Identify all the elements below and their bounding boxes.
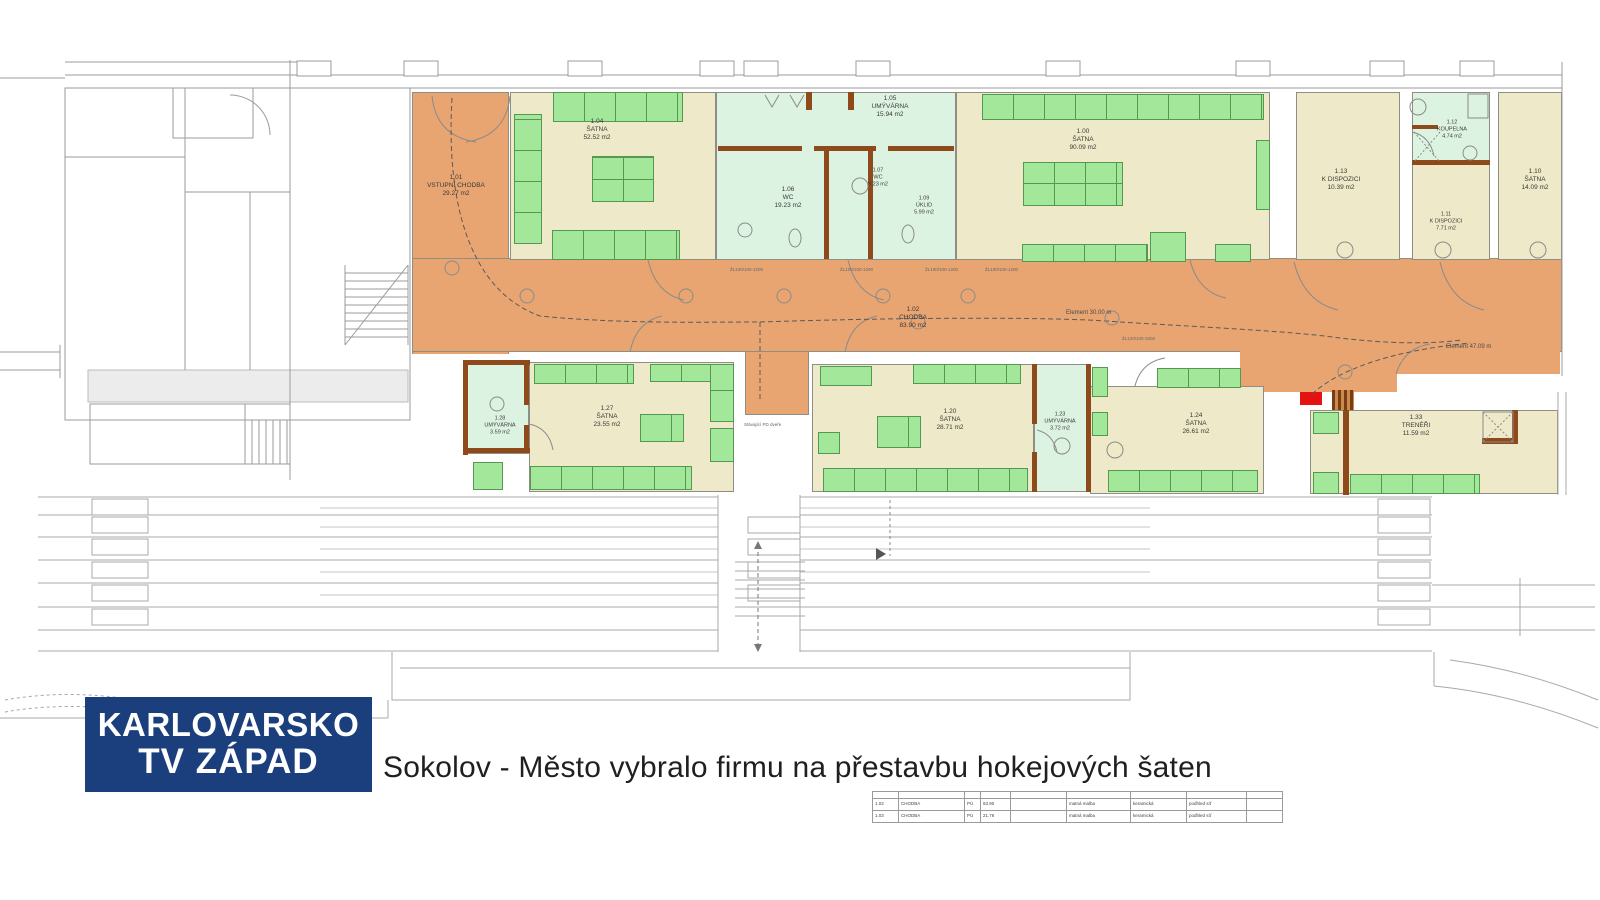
bench: [710, 364, 734, 422]
room-label-1-23: 1.23UMÝVÁRNA3.72 m2: [1044, 412, 1075, 433]
room-name: ŠATNA: [1521, 176, 1548, 184]
room-id: 1.20: [936, 408, 963, 416]
legend-cell: PÚ: [965, 811, 981, 823]
wall-segment: [1032, 452, 1037, 492]
legend-cell: [1247, 799, 1283, 811]
bench: [534, 364, 634, 384]
wall-segment: [1412, 125, 1438, 129]
wall-segment: [848, 92, 854, 110]
room-area: 29.27 m2: [427, 190, 485, 198]
room-label-1-11: 1.11K DISPOZICI7.71 m2: [1430, 212, 1463, 233]
room-id: 1.02: [899, 306, 927, 314]
wall-segment: [524, 425, 529, 453]
bench: [650, 364, 716, 382]
bench: [1092, 412, 1108, 436]
room-1-28: [467, 362, 529, 454]
legend-cell: [1187, 792, 1247, 799]
legend-cell: CHODBA: [899, 811, 965, 823]
room-id: 1.28: [484, 416, 515, 423]
room-name: KOUPELNA: [1437, 127, 1467, 134]
wall-segment: [1343, 410, 1349, 495]
room-name: ŠATNA: [593, 413, 620, 421]
room-name: UMÝVÁRNA: [484, 423, 515, 430]
legend-cell: 21.76: [981, 811, 1011, 823]
legend-cell: [965, 792, 981, 799]
room-name: WC: [774, 194, 801, 202]
room-area: 28.71 m2: [936, 424, 963, 432]
wall-segment: [824, 151, 829, 259]
room-id: 1.33: [1402, 414, 1431, 422]
room-area: 26.61 m2: [1182, 428, 1209, 436]
bench: [1313, 412, 1339, 434]
bench: [1313, 472, 1339, 494]
legend-cell: PÚ: [965, 799, 981, 811]
room-label-1-05: 1.05UMÝVÁRNA15.94 m2: [872, 95, 909, 119]
legend-cell: CHODBA: [899, 799, 965, 811]
room-name: ŠATNA: [936, 416, 963, 424]
room-label-1-28: 1.28UMÝVÁRNA3.59 m2: [484, 416, 515, 437]
bench: [1256, 140, 1270, 210]
bench: [877, 416, 921, 448]
legend-cell: [981, 792, 1011, 799]
legend-cell: [1247, 811, 1283, 823]
room-label-1-24: 1.24ŠATNA26.61 m2: [1182, 412, 1209, 436]
highlight-marker: [1300, 392, 1322, 405]
room-id: 1.27: [593, 405, 620, 413]
broadcaster-logo-line1: KARLOVARSKO: [98, 707, 360, 743]
room-id: 1.13: [1322, 168, 1361, 176]
bench: [823, 468, 1028, 492]
room-id: 1.01: [427, 174, 485, 182]
legend-cell: keramická: [1131, 799, 1187, 811]
room-id: 1.24: [1182, 412, 1209, 420]
legend-cell: [873, 792, 899, 799]
room-area: 14.09 m2: [1521, 184, 1548, 192]
legend-cell: [899, 792, 965, 799]
room-name: CHODBA: [899, 314, 927, 322]
bench: [982, 94, 1264, 120]
room-id: 1.05: [872, 95, 909, 103]
room-name: ÚKLID: [914, 203, 934, 210]
room-area: 3.23 m2: [868, 181, 888, 188]
door-hatched: [1332, 390, 1354, 410]
room-label-1-06: 1.06WC19.23 m2: [774, 186, 801, 210]
bench: [1022, 244, 1148, 262]
wall-segment: [1086, 364, 1091, 492]
legend-cell: [1011, 792, 1067, 799]
room-area: 7.71 m2: [1430, 225, 1463, 232]
legend-cell: matná malba: [1067, 811, 1131, 823]
legend-cell: 1.03: [873, 811, 899, 823]
room-area: 90.09 m2: [1069, 144, 1096, 152]
room-name: ŠATNA: [1069, 136, 1096, 144]
wall-segment: [806, 92, 812, 110]
bench: [473, 462, 503, 490]
room-label-1-04: 1.04ŠATNA52.52 m2: [583, 118, 610, 142]
annotation-lintel: ŽL100/100-1200: [985, 267, 1018, 272]
room-label-1-09: 1.09ÚKLID5.99 m2: [914, 196, 934, 217]
room-area: 83.90 m2: [899, 322, 927, 330]
legend-cell: [1247, 792, 1283, 799]
room-name: K DISPOZICI: [1322, 176, 1361, 184]
room-label-1-20: 1.20ŠATNA28.71 m2: [936, 408, 963, 432]
room-id: 1.11: [1430, 212, 1463, 219]
bench: [514, 114, 542, 244]
legend-header-row: [873, 792, 1283, 799]
bench: [530, 466, 692, 490]
annotation-existing-door: Stávající PD dveře: [744, 422, 781, 427]
room-id: 1.07: [868, 168, 888, 175]
bench: [820, 366, 872, 386]
bench: [1023, 162, 1123, 206]
room-label-1-27: 1.27ŠATNA23.55 m2: [593, 405, 620, 429]
room-name: ŠATNA: [1182, 420, 1209, 428]
tv-frame: 1.01VSTUPNÍ CHODBA29.27 m2 1.04ŠATNA52.5…: [0, 0, 1600, 900]
legend-row: 1.02 CHODBA PÚ 83.90 matná malba keramic…: [873, 799, 1283, 811]
legend-cell: matná malba: [1067, 799, 1131, 811]
room-label-1-10: 1.10ŠATNA14.09 m2: [1521, 168, 1548, 192]
legend-cell: podhled síť: [1187, 811, 1247, 823]
bench: [913, 364, 1021, 384]
room-name: WC: [868, 175, 888, 182]
corridor-band: [412, 258, 1562, 352]
legend-cell: [1131, 792, 1187, 799]
news-caption: Sokolov - Město vybralo firmu na přestav…: [383, 751, 1212, 785]
room-id: 1.10: [1521, 168, 1548, 176]
wall-segment: [463, 360, 530, 365]
room-area: 3.59 m2: [484, 429, 515, 436]
bench: [818, 432, 840, 454]
legend-cell: podhled síť: [1187, 799, 1247, 811]
bench: [640, 414, 684, 442]
room-name: UMÝVÁRNA: [872, 103, 909, 111]
room-wet-block: [716, 92, 956, 260]
wall-segment: [1482, 438, 1518, 444]
legend-cell: keramická: [1131, 811, 1187, 823]
bench: [1350, 474, 1480, 494]
wall-segment: [888, 146, 954, 151]
bench: [1108, 470, 1258, 492]
room-area: 11.59 m2: [1402, 430, 1431, 438]
legend-cell: [1011, 799, 1067, 811]
room-id: 1.04: [583, 118, 610, 126]
bench: [592, 156, 654, 202]
broadcaster-logo: KARLOVARSKO TV ZÁPAD: [85, 697, 372, 792]
annotation-element-30: Element 30.00 m: [1066, 310, 1111, 316]
wall-segment: [463, 360, 468, 455]
legend-row: 1.03 CHODBA PÚ 21.76 matná malba keramic…: [873, 811, 1283, 823]
room-name: VSTUPNÍ CHODBA: [427, 182, 485, 190]
legend-cell: 1.02: [873, 799, 899, 811]
room-label-1-02: 1.02CHODBA83.90 m2: [899, 306, 927, 330]
annotation-lintel: ŽL100/100-1200: [730, 267, 763, 272]
annotation-lintel-2: ŽL120/100-1000: [1122, 336, 1155, 341]
bench: [553, 92, 683, 122]
room-name: K DISPOZICI: [1430, 219, 1463, 226]
room-id: 1.06: [774, 186, 801, 194]
room-name: ŠATNA: [583, 126, 610, 134]
room-id: 1.00: [1069, 128, 1096, 136]
annotation-lintel: ŽL100/100-1200: [840, 267, 873, 272]
room-area: 52.52 m2: [583, 134, 610, 142]
wall-segment: [524, 365, 529, 405]
room-area: 5.99 m2: [914, 209, 934, 216]
annotation-element-47: Element 47.09 m: [1446, 344, 1491, 350]
bench: [552, 230, 680, 260]
room-area: 4.74 m2: [1437, 133, 1467, 140]
room-area: 10.39 m2: [1322, 184, 1361, 192]
bench: [1150, 232, 1186, 262]
room-label-1-01: 1.01VSTUPNÍ CHODBA29.27 m2: [427, 174, 485, 198]
room-label-1-12: 1.12KOUPELNA4.74 m2: [1437, 120, 1467, 141]
room-label-1-00: 1.00ŠATNA90.09 m2: [1069, 128, 1096, 152]
legend-cell: 83.90: [981, 799, 1011, 811]
room-id: 1.23: [1044, 412, 1075, 419]
bench: [1215, 244, 1251, 262]
wall-segment: [1032, 364, 1037, 424]
annotation-lintel: ŽL100/100-1200: [925, 267, 958, 272]
bench: [1092, 367, 1108, 397]
room-area: 3.72 m2: [1044, 425, 1075, 432]
legend-cell: [1011, 811, 1067, 823]
wall-segment: [463, 448, 530, 453]
room-name: TRENÉŘI: [1402, 422, 1431, 430]
wall-segment: [1412, 160, 1490, 165]
room-id: 1.09: [914, 196, 934, 203]
room-label-1-33: 1.33TRENÉŘI11.59 m2: [1402, 414, 1431, 438]
legend-cell: [1067, 792, 1131, 799]
room-id: 1.12: [1437, 120, 1467, 127]
room-label-1-13: 1.13K DISPOZICI10.39 m2: [1322, 168, 1361, 192]
room-name: UMÝVÁRNA: [1044, 419, 1075, 426]
bench: [1157, 368, 1241, 388]
bench: [710, 428, 734, 462]
room-area: 23.55 m2: [593, 421, 620, 429]
room-legend-table: 1.02 CHODBA PÚ 83.90 matná malba keramic…: [872, 791, 1283, 823]
corridor-vestibule: [745, 351, 809, 415]
wall-segment: [718, 146, 802, 151]
broadcaster-logo-line2: TV ZÁPAD: [138, 743, 318, 782]
room-area: 19.23 m2: [774, 202, 801, 210]
room-area: 15.94 m2: [872, 111, 909, 119]
room-label-1-07: 1.07WC3.23 m2: [868, 168, 888, 189]
